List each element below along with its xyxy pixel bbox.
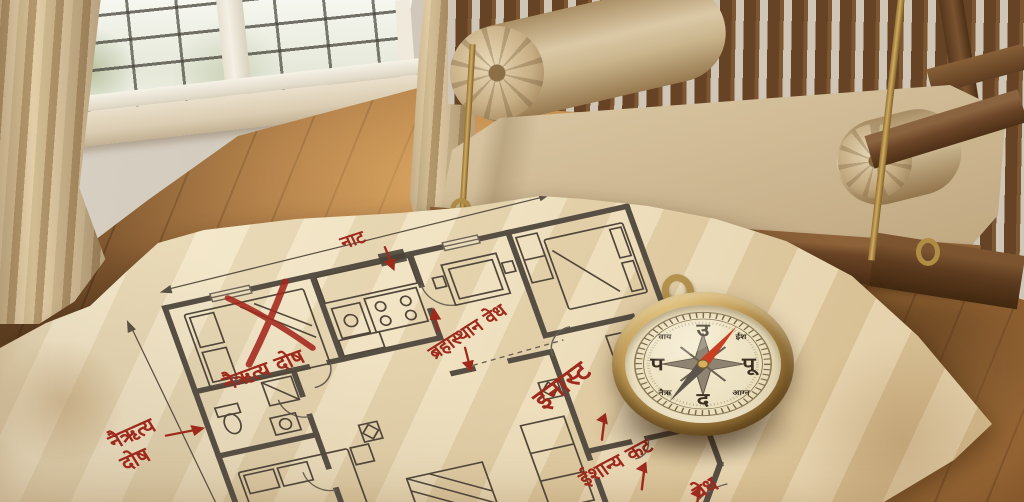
needle-pivot — [698, 360, 709, 368]
compass-dial: उ पू द प ईश आग्न नैऋ वाय — [625, 305, 781, 423]
compass-se: आग्न — [732, 388, 750, 397]
compass: उ पू द प ईश आग्न नैऋ वाय — [612, 292, 794, 436]
blueprint-paper: नाट नैऋत्य दोष ब्रहास्थान वेध इनास्ट नैऋ… — [0, 0, 1024, 502]
room-scene: नाट नैऋत्य दोष ब्रहास्थान वेध इनास्ट नैऋ… — [0, 0, 1024, 502]
compass-face: उ पू द प ईश आग्न नैऋ वाय — [625, 305, 781, 423]
blueprint-paper-shadow: नाट नैऋत्य दोष ब्रहास्थान वेध इनास्ट नैऋ… — [0, 0, 1024, 502]
compass-sw: नैऋ — [657, 388, 672, 397]
annotation-naat: नाट — [336, 227, 370, 254]
annotation-inast: इनास्ट — [526, 355, 599, 416]
compass-ne: ईश — [734, 332, 746, 341]
compass-south: द — [696, 389, 711, 409]
